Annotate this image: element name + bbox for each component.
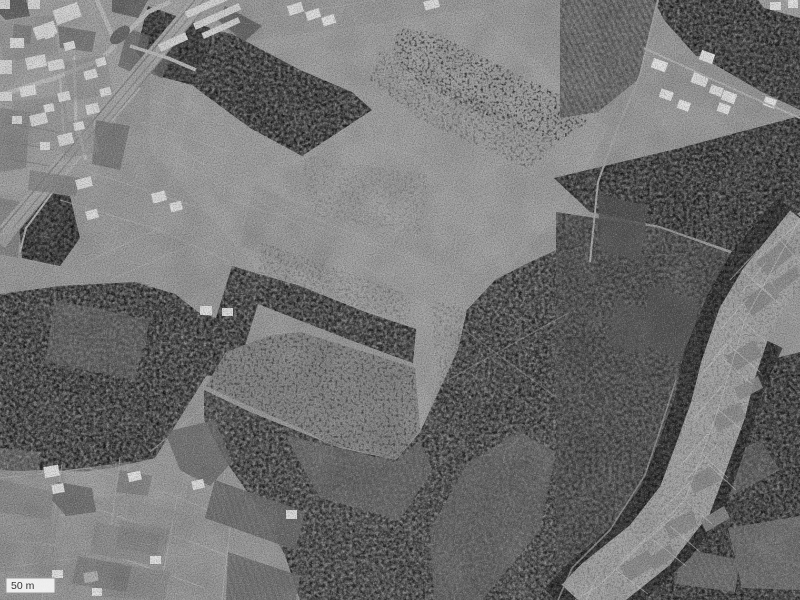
svg-text:50 m: 50 m [11,580,35,592]
